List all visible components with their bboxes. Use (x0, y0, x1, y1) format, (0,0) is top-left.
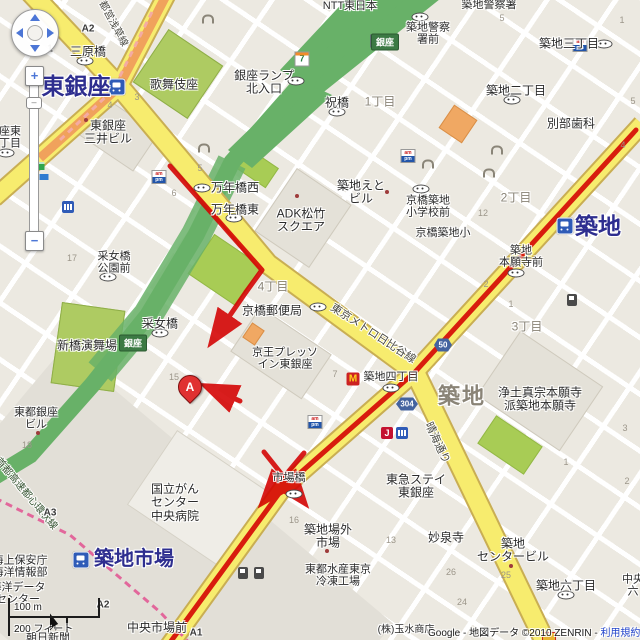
place-label: NTT東日本 (323, 0, 377, 12)
station-label: 築地市場 (94, 548, 174, 570)
place-label: 築地場外 市場 (304, 524, 352, 551)
bus-stop-icon (286, 490, 303, 499)
place-label: 座東 丁目 (0, 126, 21, 151)
place-label: 歌舞伎座 (150, 78, 198, 91)
block-number: 1 (563, 457, 568, 467)
exit-label: A2 (82, 23, 95, 34)
scale-metric: 100 m (14, 602, 42, 613)
bus-stop-icon (413, 185, 430, 194)
place-label: 国立がん センター 中央病院 (151, 483, 199, 523)
shrine-icon (198, 144, 210, 153)
j-shop-icon: J (381, 427, 393, 439)
train-station-icon[interactable] (109, 79, 126, 96)
place-label: 海上保安庁 海洋情報部 (0, 555, 48, 580)
gas-station-icon (254, 567, 264, 579)
bus-stop-icon (508, 269, 525, 278)
place-label: ADK松竹 スクエア (277, 208, 326, 235)
place-label: 東都銀座 ビル (14, 407, 58, 432)
pan-right-icon[interactable] (47, 28, 54, 38)
place-label: 祝橋 (325, 96, 349, 109)
block-number: 5 (499, 13, 504, 23)
block-number: 2 (624, 476, 629, 486)
block-number: 5 (630, 96, 635, 106)
terms-link[interactable]: 利用規約 (600, 628, 640, 639)
place-label: 築地警察署 (462, 0, 517, 11)
gas-station-icon (238, 567, 248, 579)
map-canvas[interactable]: A + ‒ − 100 m 200 フィート Google - 地図データ ©2… (0, 0, 640, 640)
building-marker-dot (509, 564, 513, 568)
place-label: 東銀座 三井ビル (84, 120, 132, 147)
place-label: 築地 本願寺前 (499, 245, 543, 270)
pan-left-icon[interactable] (16, 28, 23, 38)
block-number: 3 (134, 92, 139, 102)
place-label: 築地六丁目 (536, 579, 596, 592)
seven-eleven-icon: 7 (295, 52, 310, 67)
attribution-copyright: ©2010 ZENRIN - (522, 628, 601, 639)
block-number: 26 (446, 567, 456, 577)
pan-control[interactable] (11, 9, 59, 57)
place-label: 銀座ランプ 北入口 (234, 70, 294, 97)
block-number: 1 (508, 299, 513, 309)
place-label: 築地四丁目 (364, 371, 419, 383)
exit-label: A1 (190, 627, 203, 638)
attribution: Google - 地図データ ©2010 ZENRIN - 利用規約 (428, 624, 640, 639)
block-number: 7 (332, 369, 337, 379)
block-number: 4 (107, 100, 112, 110)
block-number: 18 (22, 440, 32, 450)
shrine-icon (483, 169, 495, 178)
block-number: 25 (501, 570, 511, 580)
place-label: 東都水産東京 冷凍工場 (305, 564, 371, 589)
district-label: 築地 (438, 385, 486, 410)
train-station-icon[interactable] (73, 552, 90, 569)
place-label: 京橋築地 小学校前 (406, 195, 450, 220)
place-label: 京王プレッソ イン東銀座 (252, 347, 318, 372)
place-label: 築地 センタービル (477, 538, 549, 565)
chome-label: 4丁目 (258, 280, 289, 293)
building-marker-dot (36, 431, 40, 435)
scale-imperial: 200 フィート (14, 620, 73, 635)
zoom-slider-handle[interactable]: ‒ (26, 97, 42, 109)
block-number: 5 (197, 163, 202, 173)
pan-up-icon[interactable] (30, 14, 40, 21)
place-label: 京橋築地小 (416, 227, 471, 239)
place-label: 浄土真宗本願寺 派築地本願寺 (498, 387, 582, 414)
station-label: 東銀座 (42, 74, 111, 100)
shrine-icon (202, 15, 214, 24)
zoom-out-button[interactable]: − (25, 231, 44, 251)
attribution-middle: - 地図データ (460, 628, 522, 639)
bank-icon (62, 201, 74, 213)
building-marker-dot (295, 194, 299, 198)
place-label: 築地二丁目 (486, 84, 546, 97)
block-number: 1 (619, 15, 624, 25)
shrine-icon (491, 146, 503, 155)
place-label: 三原橋 (70, 45, 106, 58)
ampm-store-icon: ampm (308, 415, 323, 429)
place-label: 市場橋 (273, 472, 306, 484)
expressway-exit-badge: 銀座 (119, 335, 147, 352)
expressway-exit-badge: 銀座 (371, 34, 399, 51)
block-number: 6 (171, 188, 176, 198)
pan-down-icon[interactable] (30, 45, 40, 52)
shrine-icon (422, 160, 434, 169)
place-label: 新橋演舞場 (57, 339, 117, 352)
place-label: 妙泉寺 (428, 531, 464, 544)
ampm-store-icon: ampm (401, 149, 416, 163)
place-label: 築地三丁目 (539, 37, 599, 50)
chome-label: 1丁目 (365, 95, 396, 108)
ampm-store-icon: ampm (152, 170, 167, 184)
place-label: 築地えと ビル (337, 180, 385, 207)
gas-station-icon (567, 294, 577, 306)
place-label: 万年橋西 (211, 181, 259, 194)
block-number: 16 (289, 515, 299, 525)
bus-stop-icon (194, 184, 211, 193)
zoom-in-button[interactable]: + (25, 66, 44, 86)
place-label: 中央 六 (622, 574, 640, 599)
block-number: 13 (386, 535, 396, 545)
bank-icon (396, 427, 408, 439)
attribution-provider: Google (428, 628, 460, 639)
place-label: (株)玉水商店 (378, 624, 435, 635)
place-label: 中央市場前 (127, 621, 187, 634)
marker-a-label: A (179, 376, 201, 398)
mcdonalds-icon: M (347, 373, 360, 386)
block-number: 12 (478, 208, 488, 218)
block-number: 3 (622, 423, 627, 433)
block-number: 2 (483, 279, 488, 289)
bus-stop-icon (412, 13, 429, 22)
chome-label: 2丁目 (501, 191, 532, 204)
building-marker-dot (385, 190, 389, 194)
exit-label: A3 (44, 507, 57, 518)
place-label: 築地警察 署前 (406, 22, 450, 47)
train-station-icon[interactable] (557, 218, 574, 235)
chome-label: 3丁目 (512, 320, 543, 333)
place-label: 采女橋 公園前 (98, 251, 131, 276)
block-number: 17 (67, 253, 77, 263)
place-label: 東急ステイ 東銀座 (386, 474, 446, 501)
pan-center-hand-icon[interactable] (27, 25, 43, 41)
block-number: 24 (457, 597, 467, 607)
station-label: 築地 (575, 214, 621, 240)
place-label: 別部歯科 (547, 117, 595, 130)
bus-stop-icon (310, 303, 327, 312)
bus-stop-icon (383, 384, 400, 393)
block-number: 15 (169, 372, 179, 382)
place-label: 万年橋東 (211, 203, 259, 216)
store-logo-blue-icon (40, 174, 49, 180)
place-label: 采女橋 (142, 317, 178, 330)
place-label: 京橋郵便局 (242, 304, 302, 317)
route-arrow-2 (208, 387, 240, 401)
block-number: 4 (620, 140, 625, 150)
